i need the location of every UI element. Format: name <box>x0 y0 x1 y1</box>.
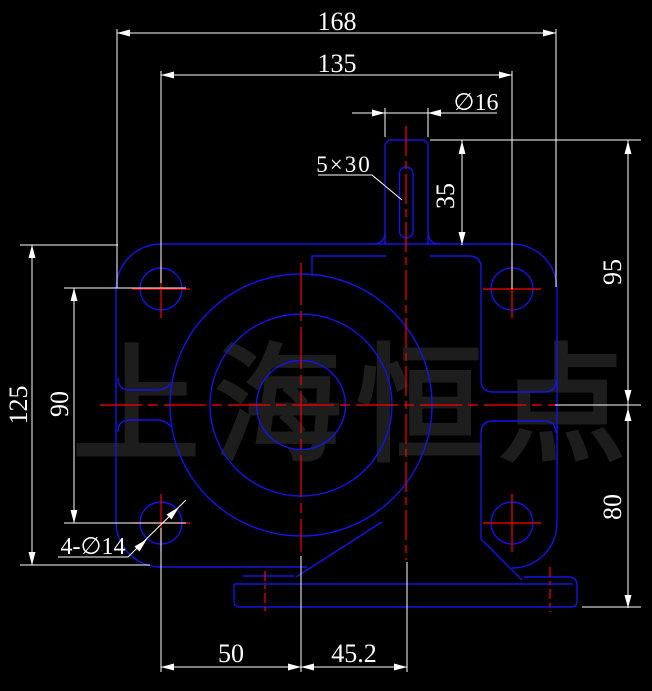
dim-shaft-height: 35 <box>431 183 460 209</box>
arrowhead <box>29 245 36 258</box>
arrowhead <box>625 595 632 608</box>
dim-bolt-spacing-vertical: 90 <box>45 391 74 417</box>
dim-keyway: 5×30 <box>316 152 371 177</box>
base-outline <box>234 584 577 607</box>
arrowhead <box>161 72 174 79</box>
arrowhead <box>29 552 36 565</box>
dim-lower-height: 80 <box>598 494 627 520</box>
arrowhead <box>161 664 174 671</box>
inner-top-line-left <box>312 256 386 276</box>
arrowhead <box>428 110 441 117</box>
arrowhead <box>372 110 385 117</box>
dim-bolt-spacing-horizontal: 135 <box>318 49 357 78</box>
dim-overall-width: 168 <box>318 7 357 36</box>
dim-upper-height: 95 <box>598 259 627 285</box>
dim-bolt-holes: 4-∅14 <box>61 534 126 560</box>
arrowhead <box>288 664 301 671</box>
arrowhead <box>459 141 466 154</box>
arrowhead <box>71 510 78 523</box>
arrowhead <box>499 72 512 79</box>
cad-drawing-canvas: 上海恒点 <box>0 0 652 691</box>
arrowhead <box>394 664 407 671</box>
dim-overall-height: 125 <box>4 386 33 425</box>
arrowhead <box>135 539 148 552</box>
arrowhead <box>459 232 466 245</box>
arrowhead <box>71 288 78 301</box>
dim-base-offset-left: 50 <box>218 639 244 668</box>
watermark-text: 上海恒点 <box>72 332 640 481</box>
arrowhead <box>543 30 556 37</box>
keyway-leader <box>318 175 402 200</box>
cad-drawing: 上海恒点 <box>0 0 652 691</box>
arrowhead <box>301 664 314 671</box>
dim-shaft-diameter: ∅16 <box>454 90 499 116</box>
dim-base-offset-right: 45.2 <box>331 639 377 668</box>
arrowhead <box>625 141 632 154</box>
arrowhead <box>117 30 130 37</box>
